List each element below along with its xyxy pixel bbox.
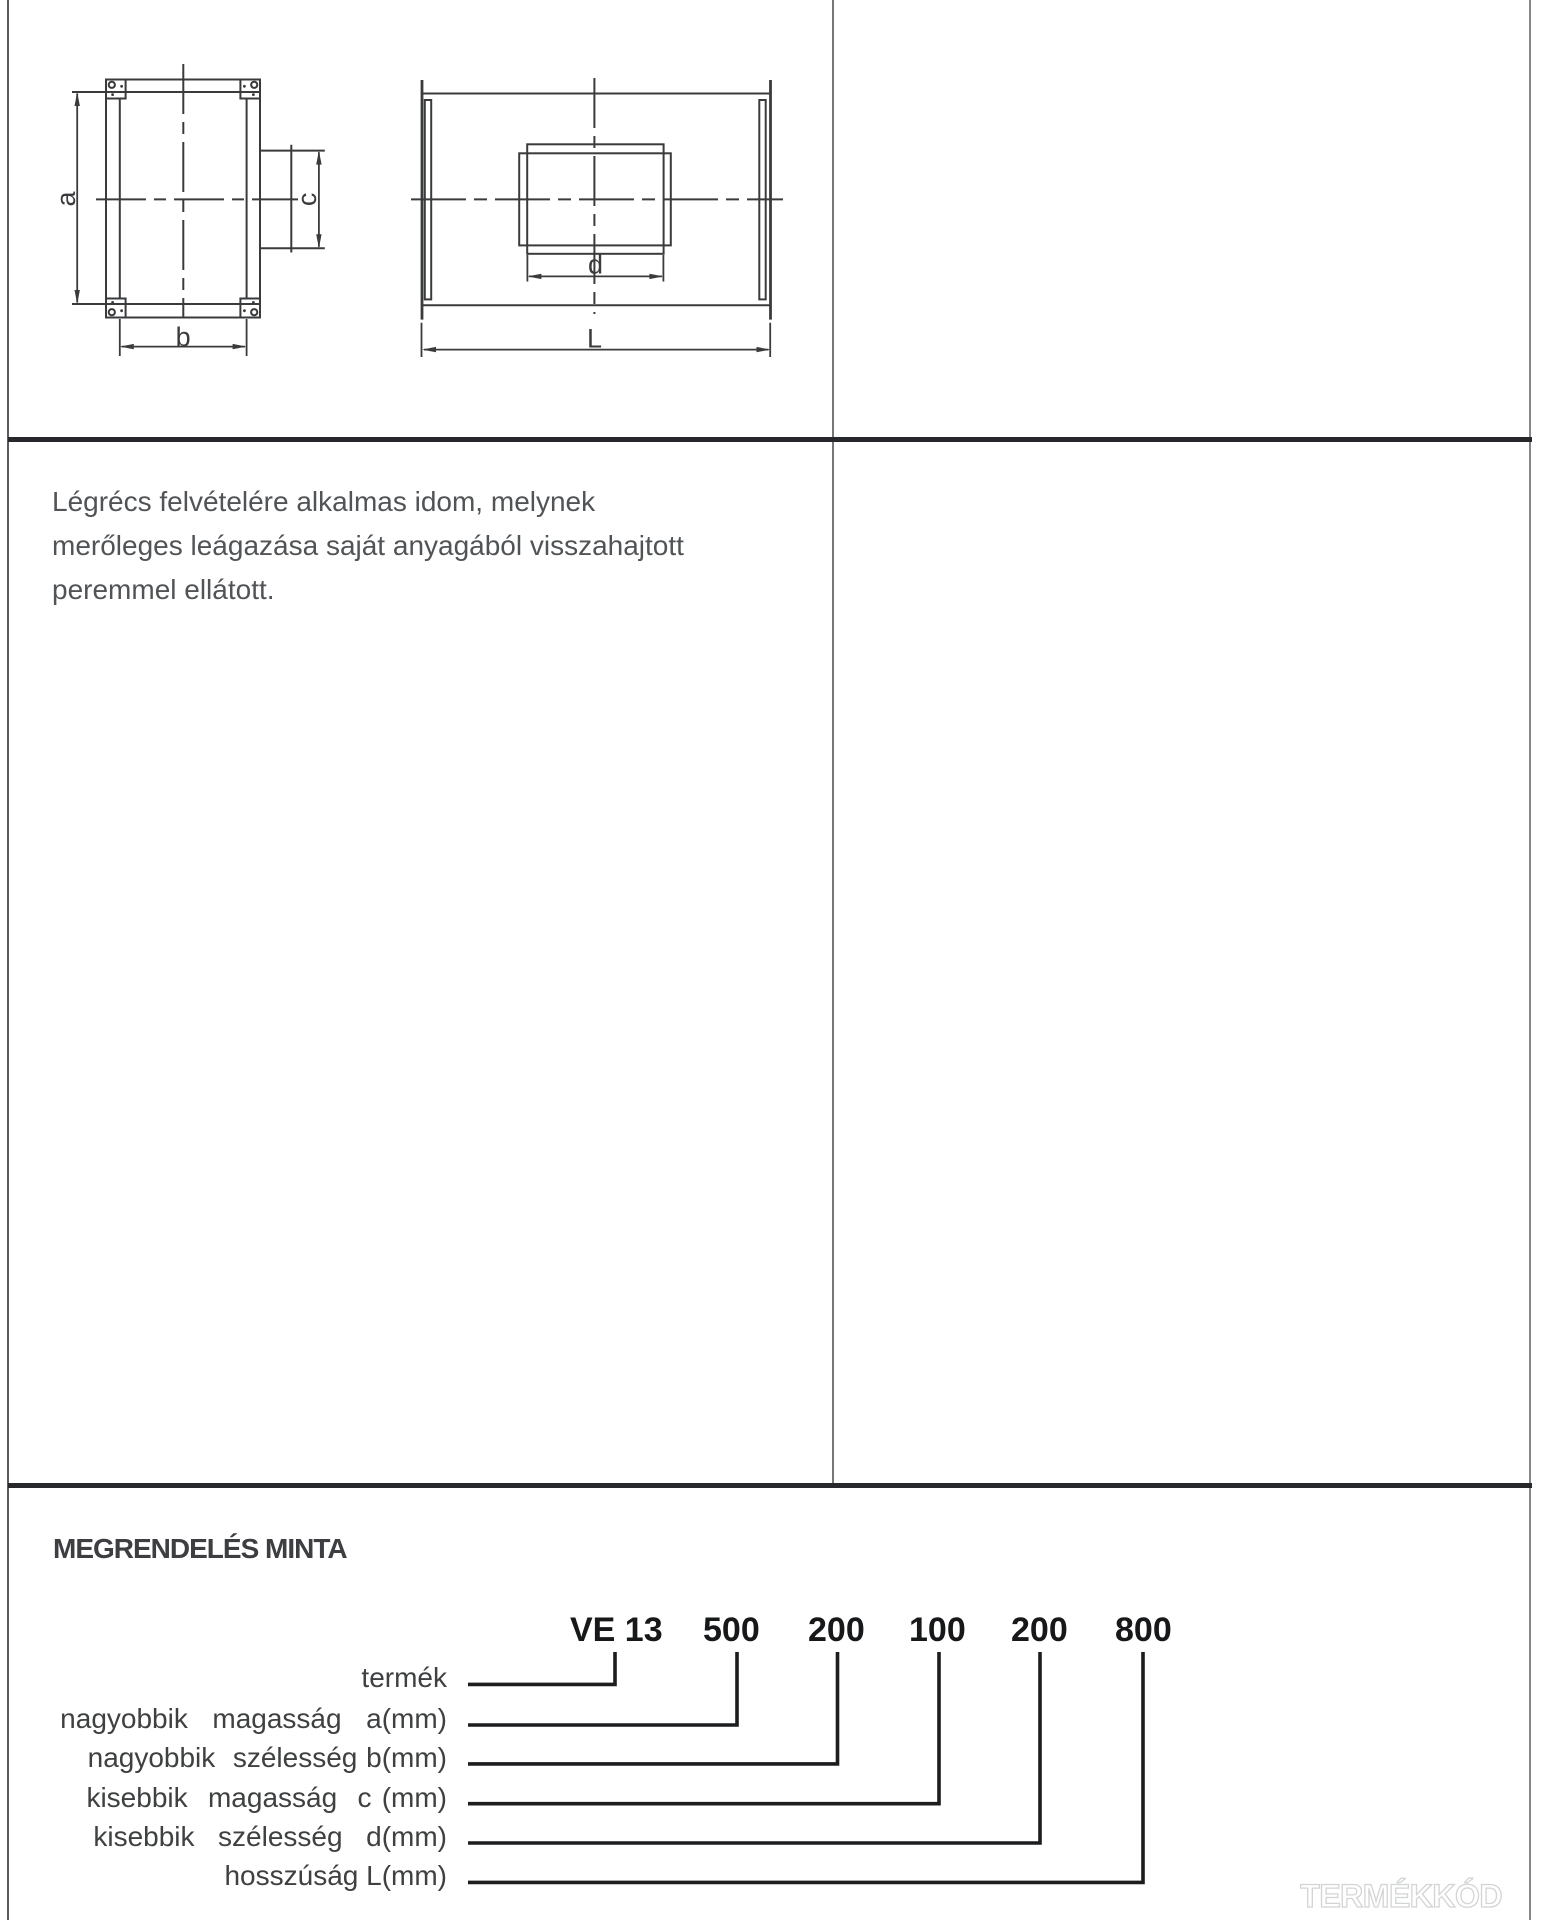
svg-text:b: b [176,322,191,352]
svg-text:a: a [51,191,81,207]
svg-text:c: c [292,193,322,207]
svg-text:L: L [587,324,602,354]
svg-text:d: d [588,250,603,280]
